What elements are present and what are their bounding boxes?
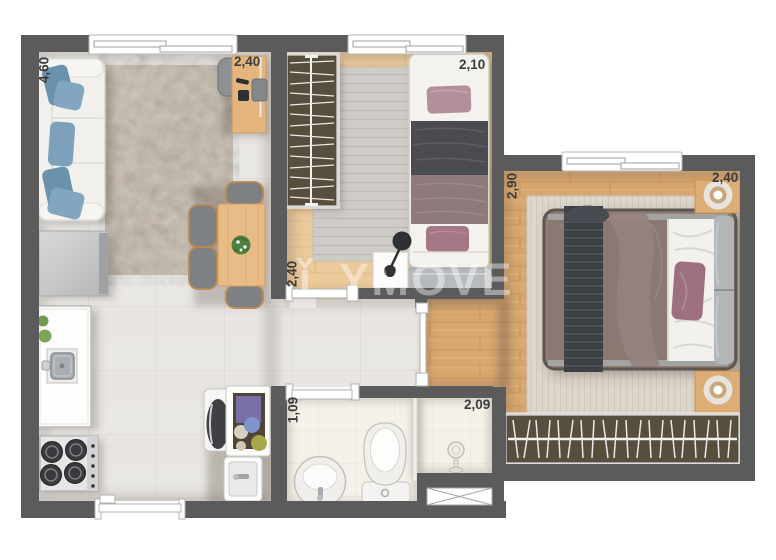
svg-text:2,09: 2,09 — [464, 397, 490, 412]
svg-text:2,90: 2,90 — [505, 173, 520, 199]
svg-text:4,60: 4,60 — [37, 57, 52, 83]
svg-text:2,40: 2,40 — [234, 54, 260, 69]
svg-text:2,40: 2,40 — [285, 261, 300, 287]
svg-text:YMOVE: YMOVE — [339, 254, 514, 305]
svg-text:1,09: 1,09 — [286, 397, 301, 423]
svg-text:2,40: 2,40 — [712, 170, 738, 185]
svg-text:2,10: 2,10 — [459, 57, 485, 72]
